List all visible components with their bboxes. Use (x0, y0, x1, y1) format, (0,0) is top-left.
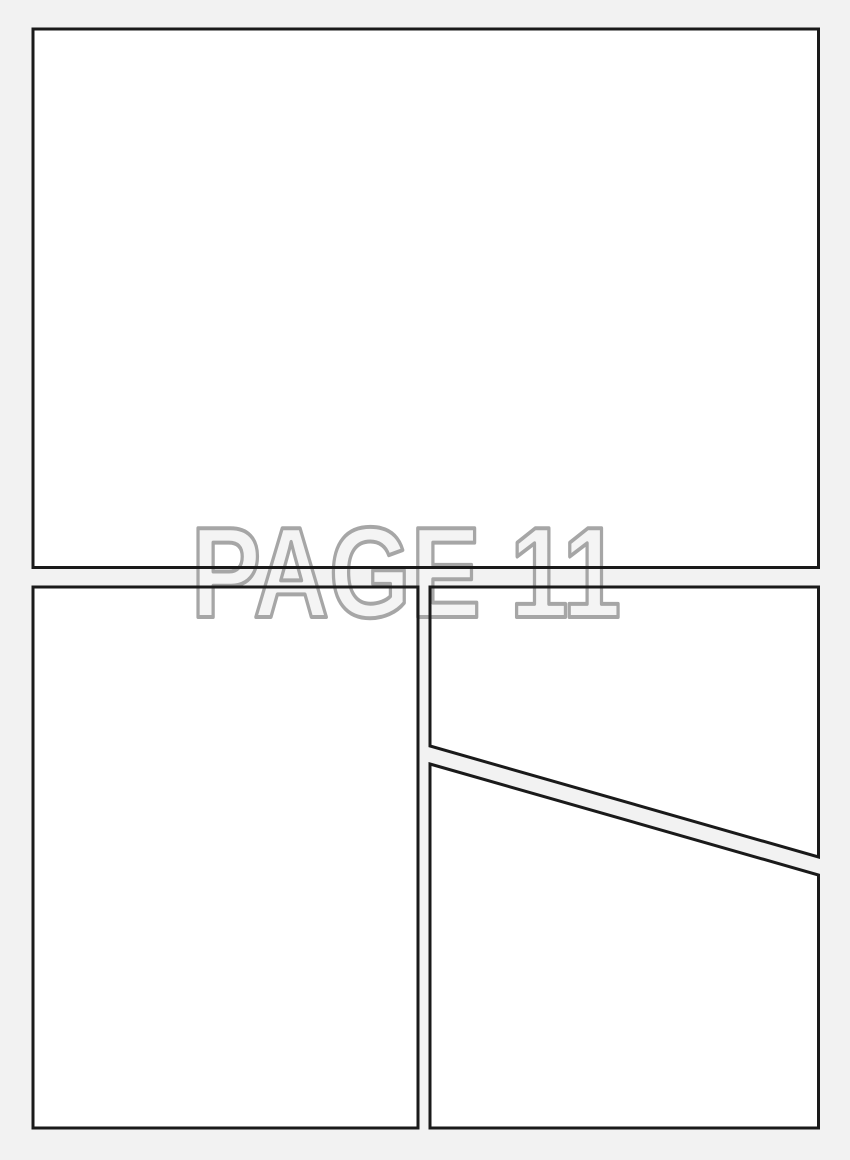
comic-page-template: PAGE 11 (0, 0, 850, 1160)
panel-top-fill (33, 29, 819, 568)
panel-bottom-left-fill (33, 587, 418, 1128)
page-number-watermark: PAGE 11 (191, 501, 621, 645)
watermark-layer: PAGE 11 (191, 501, 621, 645)
